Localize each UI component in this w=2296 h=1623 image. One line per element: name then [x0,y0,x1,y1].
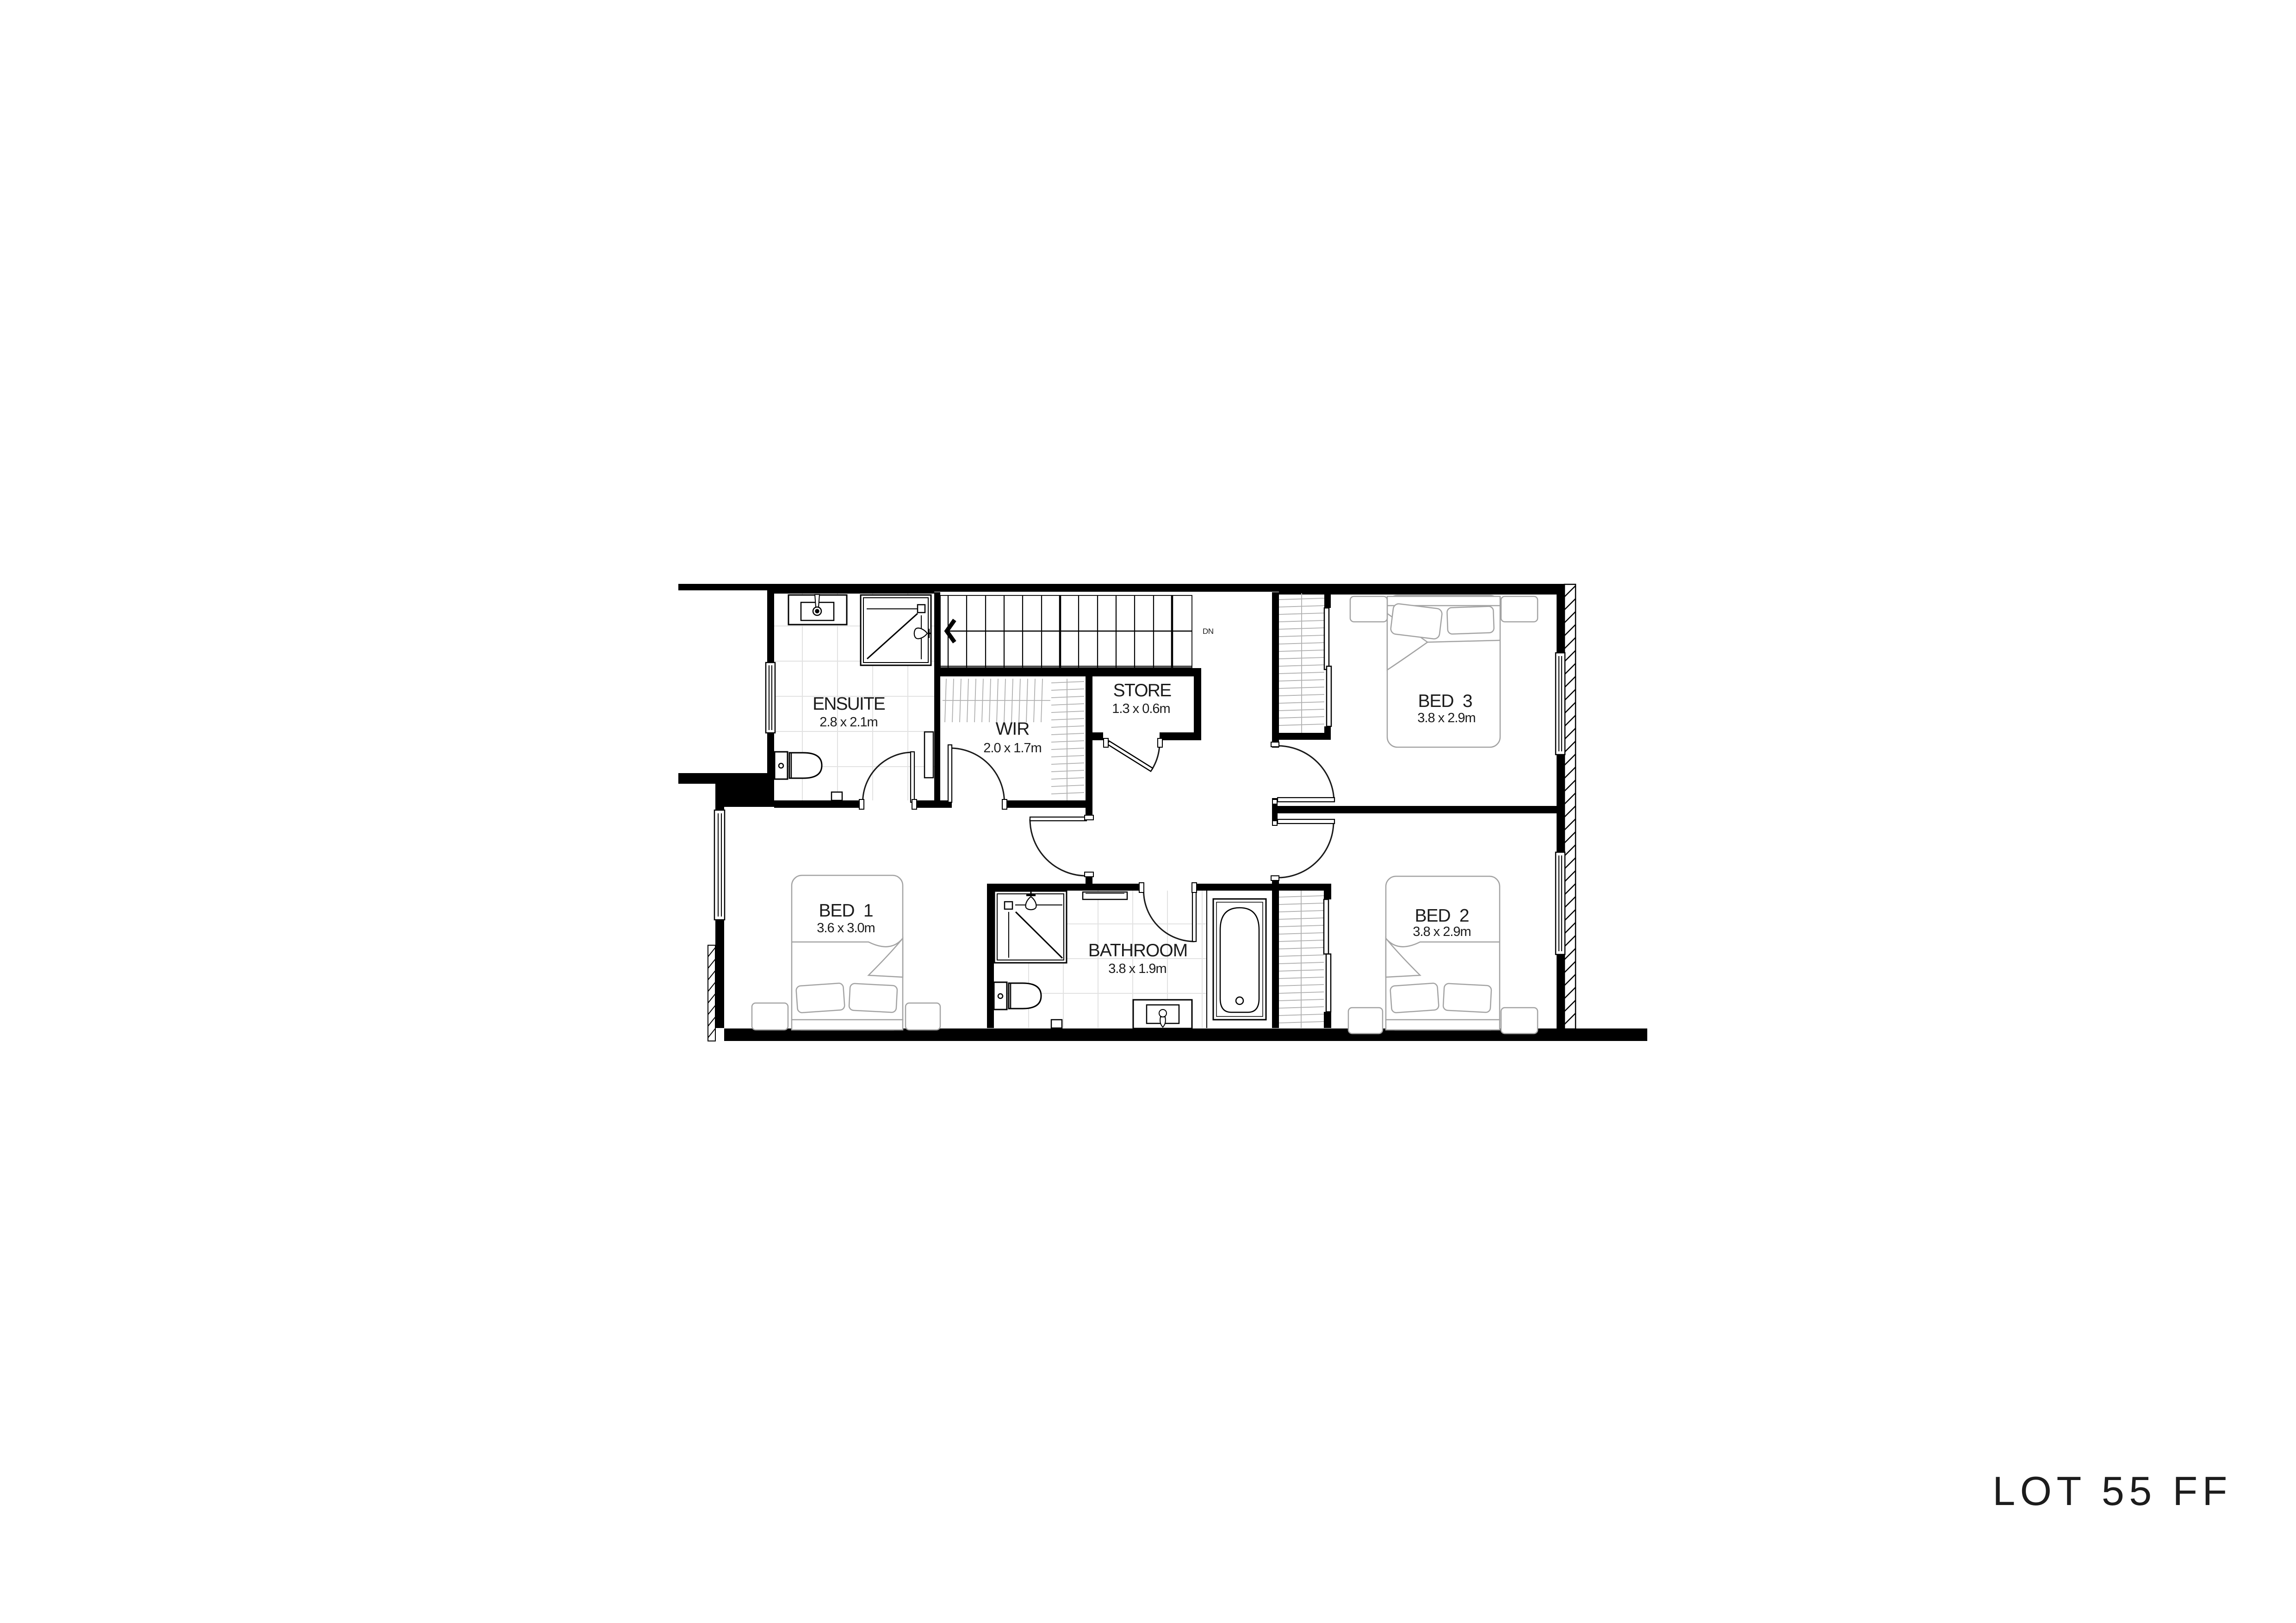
svg-text:ENSUITE: ENSUITE [813,694,885,714]
svg-text:LOT 55 FF: LOT 55 FF [1992,1468,2232,1514]
svg-text:BATHROOM: BATHROOM [1088,941,1187,960]
svg-text:1.3 x 0.6m: 1.3 x 0.6m [1112,701,1170,716]
svg-text:2.0 x 1.7m: 2.0 x 1.7m [983,741,1041,756]
svg-text:3.8 x 2.9m: 3.8 x 2.9m [1417,711,1475,725]
svg-text:BED 1: BED 1 [819,901,873,921]
svg-text:WIR: WIR [996,719,1030,739]
svg-text:BED 2: BED 2 [1415,906,1469,926]
svg-text:STORE: STORE [1113,681,1171,700]
svg-text:3.6 x 3.0m: 3.6 x 3.0m [817,921,875,935]
svg-text:DN: DN [1203,627,1214,636]
svg-text:3.8 x 1.9m: 3.8 x 1.9m [1108,961,1166,976]
svg-text:BED 3: BED 3 [1418,691,1472,711]
svg-text:3.8 x 2.9m: 3.8 x 2.9m [1413,924,1471,939]
svg-text:2.8 x 2.1m: 2.8 x 2.1m [819,715,877,730]
